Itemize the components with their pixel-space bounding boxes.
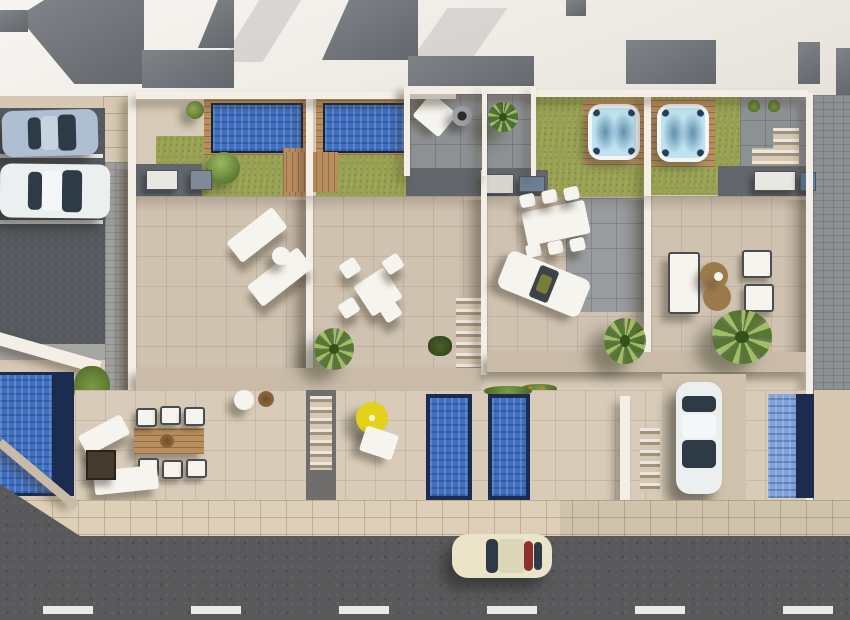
staircase-lower xyxy=(310,396,332,470)
unit3-lawn-lower xyxy=(548,170,644,196)
wall-shadow-top xyxy=(136,196,481,212)
lane-dash xyxy=(43,606,93,614)
hot-tub-1 xyxy=(588,104,640,160)
plunge-pool-2-water xyxy=(492,398,526,496)
top-wall-units34 xyxy=(533,90,808,97)
sidewalk-top xyxy=(0,96,105,108)
planter xyxy=(768,100,780,112)
plant-pot xyxy=(258,391,274,407)
car-white-roof xyxy=(42,171,62,211)
bbq-station xyxy=(146,170,178,190)
roof-terrace-wall xyxy=(531,86,536,176)
driveway-car-windshield xyxy=(682,440,716,468)
fire-pit-table xyxy=(86,450,116,480)
roof-terrace-wall-cap xyxy=(404,86,536,94)
round-chair xyxy=(234,390,254,410)
outdoor-kitchen-unit xyxy=(519,176,545,192)
dining-chair-dark xyxy=(186,459,207,478)
hot-tub-2 xyxy=(657,104,709,162)
wall-shadow xyxy=(457,200,481,298)
palm-tree-large xyxy=(712,310,772,364)
fire-bowl xyxy=(452,106,472,126)
hot-tub-1-water xyxy=(592,108,636,156)
street-car-roof xyxy=(498,539,526,573)
armchair xyxy=(744,284,774,312)
roof-dark-block xyxy=(566,0,586,16)
patio-wall xyxy=(620,396,630,500)
bbq-station xyxy=(754,171,796,191)
lane-dash xyxy=(191,606,241,614)
driveway-car-rear-glass xyxy=(682,396,716,412)
palm-tree-roof xyxy=(488,102,518,132)
party-wall-3-4 xyxy=(644,93,651,355)
palm-tree xyxy=(604,318,646,364)
driveway-car-roof xyxy=(682,414,716,438)
lane-dash xyxy=(339,606,389,614)
car-silver-roof xyxy=(41,116,59,150)
car-cream-street xyxy=(452,534,552,578)
wall-shadow xyxy=(112,170,128,392)
palm-tree xyxy=(314,328,354,370)
plunge-pool-1-water xyxy=(430,398,468,496)
car-white-rear-glass xyxy=(28,172,42,210)
parking-line xyxy=(0,220,103,224)
car-white-windshield xyxy=(62,170,82,212)
boundary-wall xyxy=(128,93,136,395)
round-side-table xyxy=(272,247,290,265)
lane-dash xyxy=(487,606,537,614)
street-car-red-stripe xyxy=(524,541,533,571)
tray xyxy=(714,272,723,281)
dining-chair-dark xyxy=(162,460,183,479)
outdoor-kitchen-unit xyxy=(190,170,212,190)
staircase-lower xyxy=(640,428,660,492)
street-car-rear-glass xyxy=(534,542,542,570)
roof-terrace-wall xyxy=(482,86,487,176)
planter xyxy=(748,100,760,112)
bbq-station xyxy=(484,174,514,194)
garden-sofa xyxy=(668,252,700,314)
lane-dash xyxy=(783,606,833,614)
roof-dark-block xyxy=(798,42,820,84)
roof-penthouse xyxy=(142,50,234,88)
wall-shadow xyxy=(782,200,806,352)
small-plant xyxy=(428,336,452,356)
rooftop-pool-2-water xyxy=(323,103,415,153)
road xyxy=(0,536,850,620)
dining-chair-dark xyxy=(136,408,157,427)
sidewalk-shade xyxy=(560,500,850,536)
terrace-parapet-units12 xyxy=(136,368,481,390)
rooftop-pool-1-water xyxy=(211,103,303,153)
table-centerpiece xyxy=(160,434,174,448)
armchair xyxy=(742,250,772,278)
dining-chair-dark xyxy=(160,406,181,425)
car-silver xyxy=(1,109,98,157)
dining-chair-dark xyxy=(184,407,205,426)
roof-dark-block xyxy=(0,10,28,32)
car-silver-rear-glass xyxy=(28,117,42,149)
small-tree xyxy=(186,101,204,119)
roof-dark-block xyxy=(626,40,716,84)
lane-dash xyxy=(635,606,685,614)
car-silver-windshield xyxy=(58,114,77,150)
coffee-table-round xyxy=(703,283,731,311)
corner-patio-right xyxy=(814,390,850,500)
roof-dark-block xyxy=(836,48,850,96)
street-car-windshield xyxy=(486,539,498,573)
site-plan-render xyxy=(0,0,850,620)
car-white-driveway xyxy=(676,382,722,494)
hot-tub-2-water xyxy=(661,108,705,158)
roof-terrace-wall xyxy=(404,86,410,176)
car-white xyxy=(0,163,110,218)
plunge-pool-3-water xyxy=(768,394,796,498)
lawn-tree xyxy=(208,152,240,184)
party-wall-1-2 xyxy=(306,93,313,375)
